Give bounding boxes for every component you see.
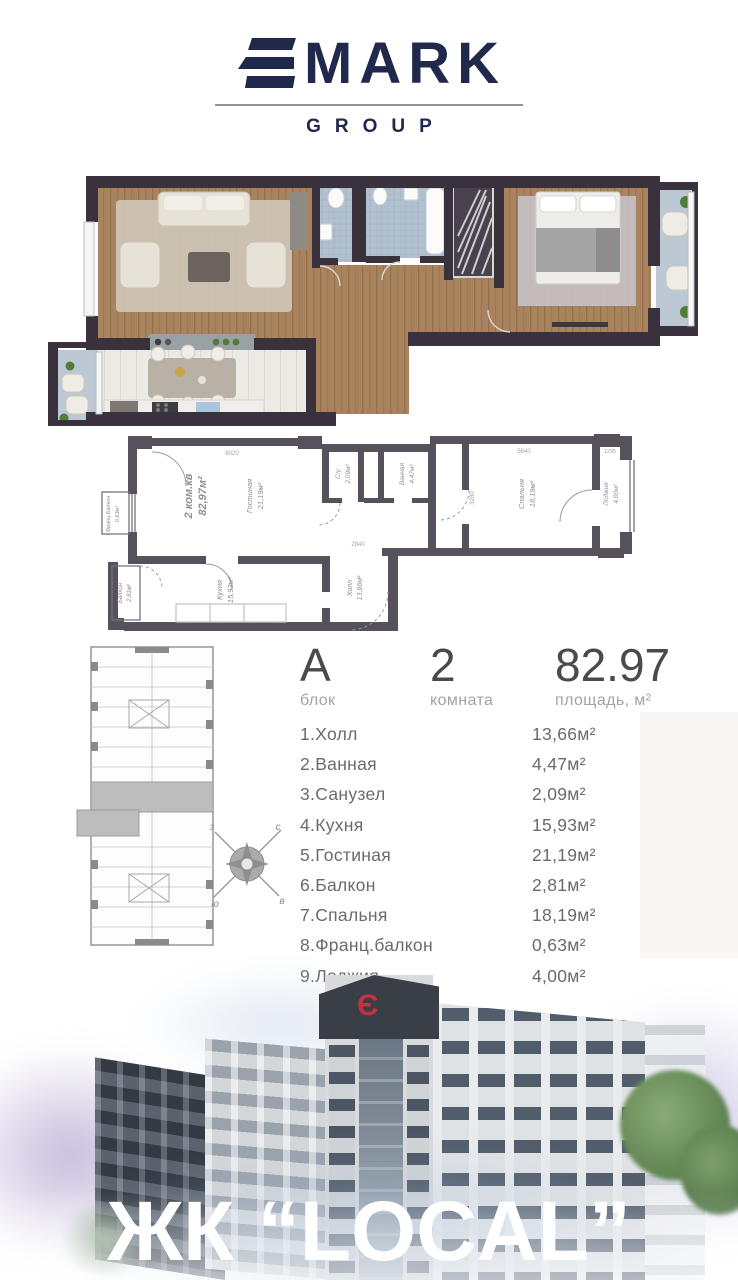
unit-stats: A блок 2 комната 82.97 площадь, м² <box>300 640 720 710</box>
list-item: 3.Санузел2,09м² <box>300 784 712 805</box>
bed <box>536 192 620 284</box>
room-area: 0,63м² <box>532 935 586 956</box>
walls-2d <box>108 434 632 631</box>
room-name: 3.Санузел <box>300 784 532 805</box>
stat-area: 82.97 площадь, м² <box>555 640 720 710</box>
floorplan-3d <box>40 170 700 428</box>
outlines-2d <box>102 460 634 622</box>
stat-rooms-value: 2 <box>430 640 555 690</box>
label-holl-area: 13,66м² <box>357 575 364 600</box>
armchair-right <box>246 242 286 288</box>
brand-name: MARK <box>304 36 506 92</box>
room-name: 5.Гостиная <box>300 845 532 866</box>
dim-lodzhiya: 1295 <box>604 449 616 455</box>
unit-area-label: 82,97м² <box>197 476 209 516</box>
list-item: 6.Балкон2,81м² <box>300 875 712 896</box>
label-lodzhiya-area: 4,00м² <box>613 484 620 504</box>
room-area: 21,19м² <box>532 845 596 866</box>
label-balkon-area: 2,81м² <box>127 583 133 603</box>
label-vannaya: Ванная <box>399 462 406 485</box>
list-item: 8.Франц.балкон0,63м² <box>300 935 712 956</box>
room-name: 1.Холл <box>300 724 532 745</box>
armchair-left <box>120 242 160 288</box>
compass-south: ю <box>211 899 219 910</box>
label-gostinaya: Гостиная <box>245 479 254 513</box>
brand-group: GROUP <box>0 116 738 138</box>
list-item: 7.Спальня18,19м² <box>300 905 712 926</box>
label-gostinaya-area: 21,19м² <box>256 482 265 510</box>
stat-area-label: площадь, м² <box>555 692 720 710</box>
sofa <box>158 192 250 226</box>
label-france-balkon-area: 0,63м² <box>115 506 121 522</box>
dim-hall: 2840 <box>351 542 365 548</box>
label-lodzhiya: Лоджия <box>602 482 610 507</box>
stat-block: A блок <box>300 640 430 710</box>
wardrobe-shelving <box>454 188 492 276</box>
dim-gostinaya: 6020 <box>225 451 239 457</box>
compass-east: в <box>279 896 284 907</box>
dim-spalnya-v: 3280 <box>470 491 476 505</box>
bar-counter <box>148 334 256 350</box>
label-kuhnya: Кухня <box>215 580 224 600</box>
stat-rooms: 2 комната <box>430 640 555 710</box>
label-vannaya-area: 4,47м² <box>409 464 416 484</box>
list-item: 2.Ванная4,47м² <box>300 754 712 775</box>
list-item: 1.Холл13,66м² <box>300 724 712 745</box>
stat-block-value: A <box>300 640 430 690</box>
room-area: 2,09м² <box>532 784 586 805</box>
floorplan-2d: 6020 2840 5840 3280 1295 2 ком.кв 82,97м… <box>82 428 660 635</box>
room-area: 2,81м² <box>532 875 586 896</box>
brand-logo: MARK GROUP <box>0 36 738 138</box>
complex-title: ЖК “LOCAL” <box>0 1186 738 1276</box>
label-su: С/у <box>335 468 342 479</box>
label-spalnya: Спальня <box>517 479 526 509</box>
room-name: 6.Балкон <box>300 875 532 896</box>
room-name: 2.Ванная <box>300 754 532 775</box>
stat-block-label: блок <box>300 692 430 710</box>
label-su-area: 2,09м² <box>345 464 352 485</box>
compass-west: з <box>209 822 215 833</box>
stat-area-value: 82.97 <box>555 640 720 690</box>
room-area: 4,47м² <box>532 754 586 775</box>
dim-spalnya: 5840 <box>517 449 531 455</box>
building-render: Э ЖК “LOCAL” <box>0 955 738 1280</box>
label-holl: Холл <box>347 580 354 597</box>
compass-north: с <box>276 822 281 833</box>
floorplate-schematic: с в ю з <box>75 642 290 960</box>
rooftop-logo: Э <box>357 989 378 1023</box>
brand-mark-icon <box>232 36 298 92</box>
stat-rooms-label: комната <box>430 692 555 710</box>
room-area: 15,93м² <box>532 815 596 836</box>
compass-rose: с в ю з <box>209 822 285 910</box>
bedroom-tv <box>552 322 608 327</box>
room-name: 4.Кухня <box>300 815 532 836</box>
kitchen-counter <box>104 400 264 414</box>
coffee-table <box>188 252 230 282</box>
room-area: 13,66м² <box>532 724 596 745</box>
list-item: 4.Кухня15,93м² <box>300 815 712 836</box>
rooftop-band: Э <box>319 975 439 1039</box>
list-item: 5.Гостиная21,19м² <box>300 845 712 866</box>
label-spalnya-area: 18,19м² <box>528 480 537 507</box>
label-balkon: Балкон <box>118 582 124 603</box>
room-name: 7.Спальня <box>300 905 532 926</box>
unit-type-label: 2 ком.кв <box>183 473 195 519</box>
label-kuhnya-area: 15,93м² <box>226 576 235 603</box>
room-list: 1.Холл13,66м² 2.Ванная4,47м² 3.Санузел2,… <box>300 724 712 987</box>
room-name: 8.Франц.балкон <box>300 935 532 956</box>
room-area: 18,19м² <box>532 905 596 926</box>
tv-console <box>290 192 308 250</box>
label-france-balkon: Франц.Балкон <box>106 496 112 533</box>
logo-divider <box>215 104 523 106</box>
